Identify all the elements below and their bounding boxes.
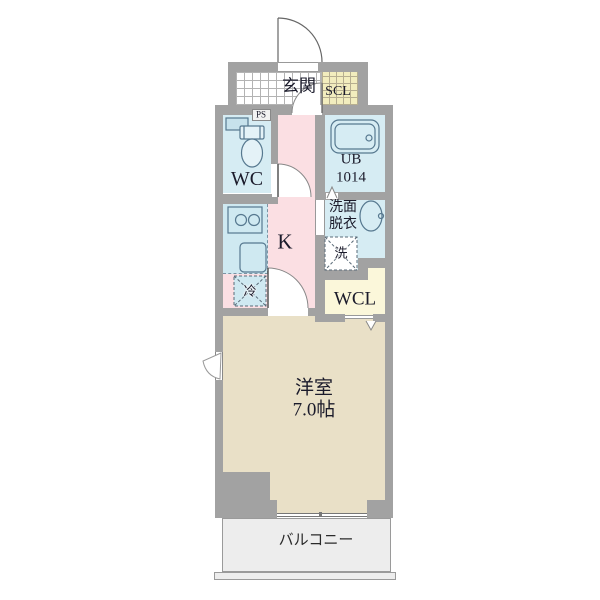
senmen-label-line2: 脱衣: [329, 218, 357, 232]
bathtub-icon: [331, 120, 379, 153]
entrance-door-swing-icon: [278, 18, 322, 62]
wc-label: WC: [231, 169, 263, 189]
casement-window-icon: [203, 353, 221, 379]
genkan-label: 玄関: [282, 78, 316, 95]
wc-door-swing-icon: [272, 164, 311, 197]
sliding-window-icon: [277, 512, 367, 517]
kitchen-sink-icon: [240, 243, 266, 272]
scl-label: SCL: [325, 85, 351, 99]
wcl-label: WCL: [334, 290, 376, 309]
balcony-label: バルコニー: [279, 534, 354, 549]
sink-icon: [360, 201, 384, 231]
stove-icon: [228, 207, 262, 233]
ps-label: PS: [256, 111, 266, 120]
ub-size-label: 1014: [336, 171, 366, 186]
main-room-size-label: 7.0帖: [293, 401, 336, 420]
fridge-label: 冷: [243, 285, 256, 298]
floor-plan: 玄関 SCL PS WC UB 1014 洗面 脱衣 洗 K 冷 WCL 洋室 …: [0, 0, 600, 600]
ub-label: UB: [341, 153, 362, 168]
ub-door-marker-icon: [327, 187, 337, 198]
wcl-door-marker-icon: [366, 321, 376, 330]
toilet-icon: [226, 118, 264, 167]
washer-label: 洗: [334, 247, 347, 260]
kitchen-label: K: [277, 232, 292, 253]
main-room-label: 洋室: [295, 379, 333, 398]
senmen-label-line1: 洗面: [329, 201, 357, 215]
kitchen-door-swing-icon: [268, 268, 308, 308]
